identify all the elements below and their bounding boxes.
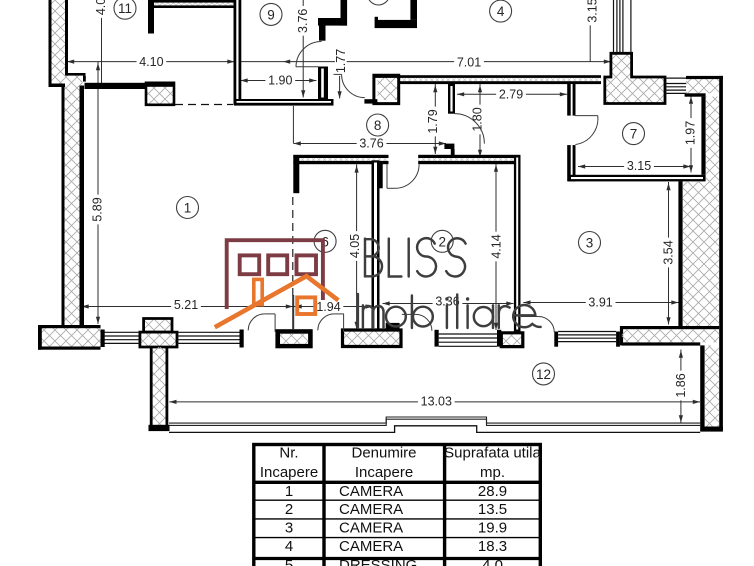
svg-text:2: 2: [285, 501, 293, 518]
svg-text:1.94: 1.94: [316, 300, 340, 314]
svg-text:13.5: 13.5: [478, 501, 507, 518]
svg-text:1.97: 1.97: [683, 121, 697, 145]
svg-text:1.90: 1.90: [268, 73, 292, 87]
svg-text:4.05: 4.05: [348, 234, 362, 258]
svg-text:3.91: 3.91: [588, 295, 612, 309]
svg-text:19.9: 19.9: [478, 520, 507, 537]
svg-text:11: 11: [118, 1, 132, 16]
svg-text:3.15: 3.15: [585, 0, 599, 23]
svg-text:CAMERA: CAMERA: [339, 483, 403, 500]
svg-text:CAMERA: CAMERA: [339, 538, 403, 555]
svg-text:DRESSING: DRESSING: [339, 557, 417, 566]
svg-text:1: 1: [285, 483, 293, 500]
svg-text:CAMERA: CAMERA: [339, 520, 403, 537]
svg-text:12: 12: [536, 367, 551, 382]
svg-text:1: 1: [184, 201, 192, 216]
svg-text:3.76: 3.76: [296, 9, 310, 33]
svg-text:Nr.: Nr.: [279, 445, 298, 462]
svg-text:9: 9: [267, 7, 275, 22]
svg-text:28.9: 28.9: [478, 483, 507, 500]
svg-text:1.79: 1.79: [426, 109, 440, 133]
svg-text:7: 7: [630, 127, 638, 142]
svg-text:3.76: 3.76: [359, 136, 383, 150]
svg-text:8: 8: [374, 118, 382, 133]
svg-text:CAMERA: CAMERA: [339, 501, 403, 518]
svg-text:1.77: 1.77: [334, 49, 348, 73]
svg-text:5.89: 5.89: [91, 197, 105, 221]
svg-text:4.10: 4.10: [139, 55, 163, 69]
svg-text:5: 5: [285, 557, 293, 566]
svg-text:2.79: 2.79: [499, 87, 523, 101]
svg-text:1.86: 1.86: [674, 373, 688, 397]
svg-text:4.0: 4.0: [482, 557, 503, 566]
svg-text:Incapere: Incapere: [260, 464, 318, 481]
svg-text:3: 3: [285, 520, 293, 537]
svg-text:3.54: 3.54: [661, 240, 675, 264]
svg-text:Incapere: Incapere: [355, 464, 413, 481]
svg-text:4.05: 4.05: [94, 0, 108, 15]
svg-text:4: 4: [285, 538, 293, 555]
svg-text:3.15: 3.15: [627, 159, 651, 173]
svg-text:5.21: 5.21: [174, 298, 198, 312]
svg-text:4: 4: [497, 4, 505, 19]
svg-text:7.01: 7.01: [457, 56, 481, 70]
svg-text:mp.: mp.: [480, 464, 505, 481]
svg-text:2: 2: [438, 234, 446, 249]
svg-text:4.14: 4.14: [490, 234, 504, 258]
svg-text:13.03: 13.03: [421, 395, 452, 409]
svg-text:18.3: 18.3: [478, 538, 507, 555]
svg-text:Suprafata utila: Suprafata utila: [444, 445, 541, 462]
svg-text:Denumire: Denumire: [351, 445, 416, 462]
svg-text:3: 3: [586, 236, 594, 251]
